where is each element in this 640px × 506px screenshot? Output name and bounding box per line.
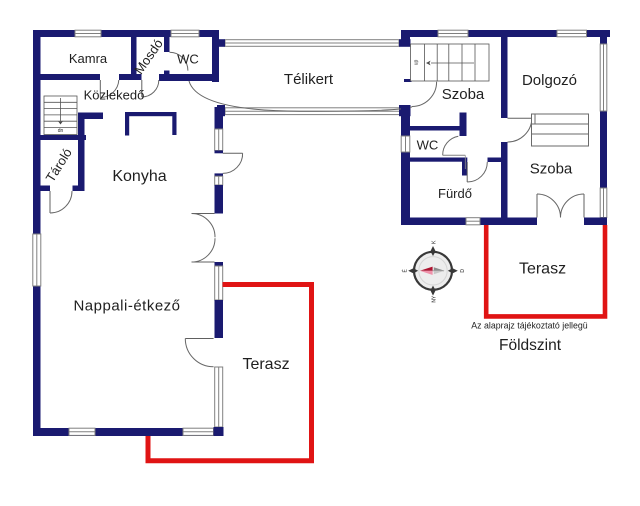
svg-text:Terasz: Terasz	[519, 261, 566, 278]
svg-text:NY: NY	[431, 295, 437, 303]
svg-text:up: up	[414, 60, 420, 66]
svg-text:Dolgozó: Dolgozó	[522, 72, 577, 89]
svg-text:up: up	[58, 127, 64, 133]
svg-text:WC: WC	[177, 52, 199, 67]
svg-text:Közlekedő: Közlekedő	[84, 88, 145, 103]
svg-text:Nappali-étkező: Nappali-étkező	[73, 298, 180, 315]
svg-text:Szoba: Szoba	[530, 161, 573, 178]
svg-text:Terasz: Terasz	[242, 356, 289, 373]
svg-text:Fürdő: Fürdő	[438, 186, 472, 201]
svg-text:Szoba: Szoba	[442, 86, 485, 103]
svg-text:D: D	[460, 269, 466, 273]
svg-text:Az alaprajz tájékoztató jelleg: Az alaprajz tájékoztató jellegü	[471, 321, 587, 331]
svg-text:Kamra: Kamra	[69, 51, 108, 66]
svg-text:Télikert: Télikert	[284, 71, 334, 88]
svg-text:WC: WC	[417, 138, 439, 153]
svg-text:Földszint: Földszint	[499, 337, 562, 354]
svg-text:Konyha: Konyha	[112, 168, 166, 185]
